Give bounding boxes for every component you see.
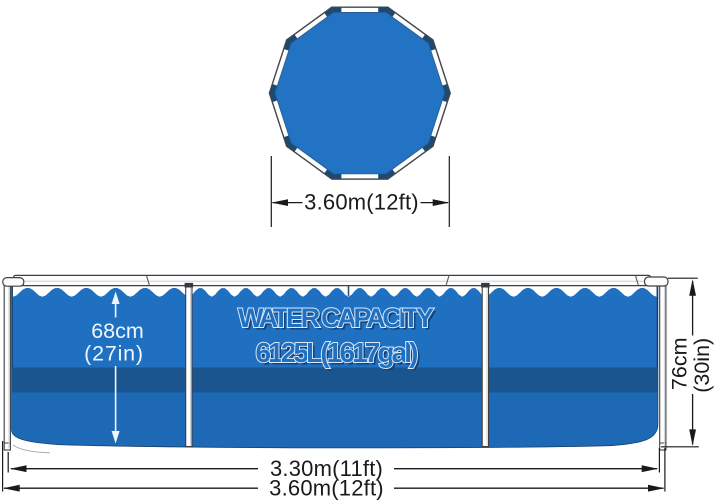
svg-text:76cm: 76cm — [668, 338, 692, 391]
svg-text:6125L(1617gal): 6125L(1617gal) — [256, 337, 419, 368]
svg-text:WATER CAPACITY: WATER CAPACITY — [238, 303, 434, 333]
svg-text:3.60m(12ft): 3.60m(12ft) — [269, 476, 384, 501]
svg-text:(27in): (27in) — [84, 342, 144, 366]
svg-text:(30in): (30in) — [690, 338, 714, 393]
svg-text:3.60m(12ft): 3.60m(12ft) — [304, 190, 419, 215]
svg-text:68cm: 68cm — [91, 319, 144, 343]
